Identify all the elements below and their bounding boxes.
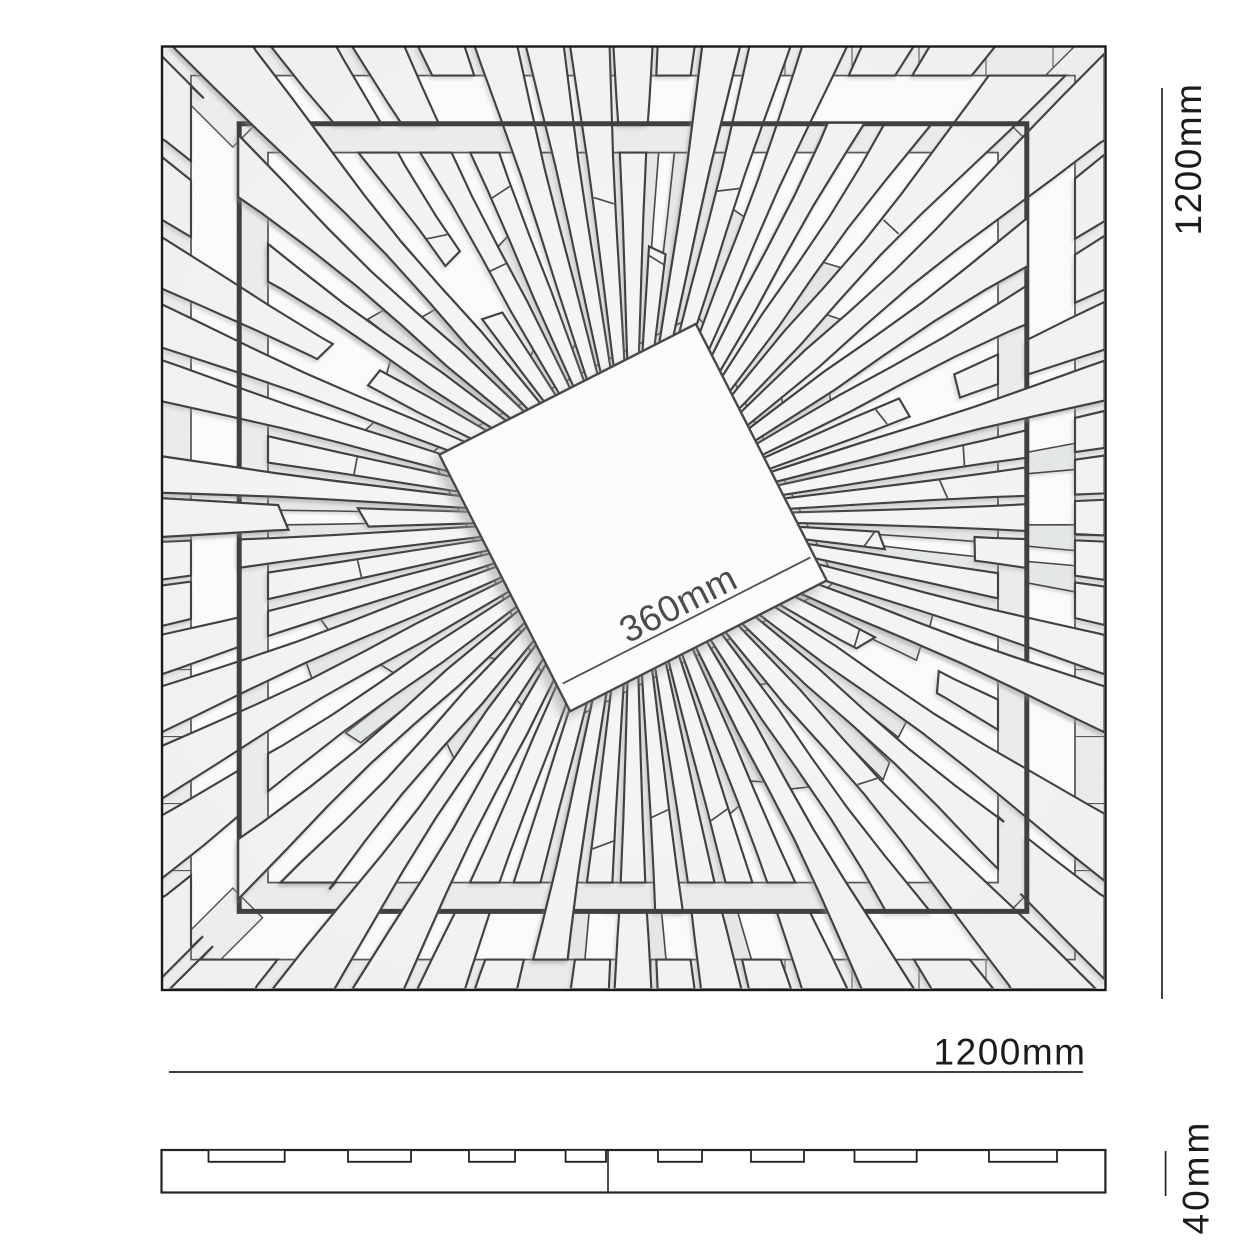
svg-text:1200mm: 1200mm: [1168, 83, 1209, 236]
svg-text:40mm: 40mm: [1176, 1120, 1217, 1235]
svg-text:1200mm: 1200mm: [934, 1032, 1087, 1073]
